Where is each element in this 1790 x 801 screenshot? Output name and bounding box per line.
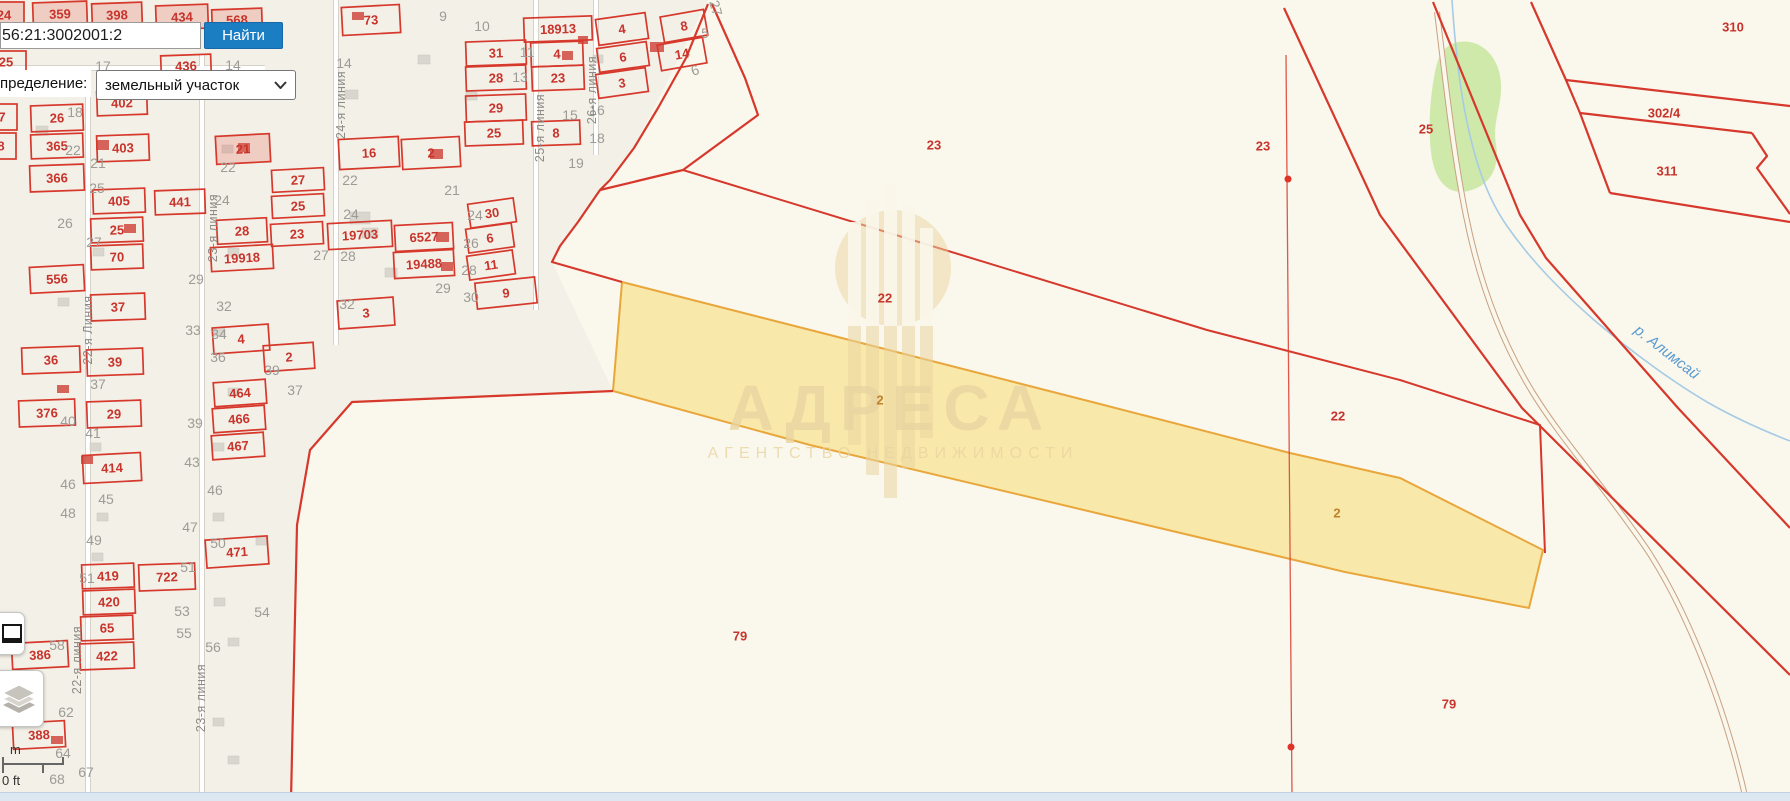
- address-number: 39: [187, 415, 203, 431]
- address-number: 45: [98, 491, 114, 507]
- address-number: 22: [220, 159, 236, 175]
- address-number: 13: [512, 69, 528, 85]
- address-number: 37: [90, 376, 106, 392]
- address-number: 56: [205, 639, 221, 655]
- address-number: 32: [339, 296, 355, 312]
- parcel-number: 23: [551, 70, 566, 85]
- address-number: 24: [343, 206, 359, 222]
- rural-parcel-number: 79: [733, 629, 747, 644]
- address-number: 15: [562, 107, 578, 123]
- address-number: 27: [86, 234, 102, 250]
- rural-parcel-number: 79: [1442, 697, 1456, 712]
- parcel-number: 6527: [409, 229, 439, 245]
- scale-control: m 0 ft: [2, 742, 64, 788]
- capital-structure: [352, 12, 364, 20]
- parcel-number: 28: [234, 223, 249, 239]
- rural-parcel-number: 310: [1722, 20, 1744, 35]
- address-number: 28: [340, 248, 356, 264]
- parcel-number: 24: [0, 8, 12, 23]
- capital-structure: [96, 140, 109, 150]
- parcel-number: 73: [363, 12, 378, 28]
- block-310-west: [1531, 2, 1610, 193]
- address-number: 18: [67, 104, 83, 120]
- rural-parcel-number: 302/4: [1648, 106, 1681, 121]
- parcel-number: 31: [489, 45, 504, 60]
- capital-structure: [124, 224, 136, 233]
- parcel-number: 414: [101, 460, 124, 476]
- address-number: 58: [49, 637, 65, 653]
- parcel-number: 26: [50, 110, 65, 125]
- address-number: 22: [65, 142, 81, 158]
- building-footprint: [228, 638, 239, 646]
- address-number: 39: [264, 362, 280, 378]
- street-label: 23-я линия: [206, 194, 220, 262]
- survey-point: [1285, 176, 1292, 183]
- parcel-number: 419: [97, 568, 119, 584]
- selected-parcel-number: 2: [1333, 506, 1340, 521]
- river-line: [1452, 0, 1790, 441]
- building-footprint: [214, 598, 225, 606]
- address-number: 27: [706, 0, 726, 18]
- street-label: 25-я линия: [533, 94, 547, 162]
- layers-icon: [2, 683, 36, 715]
- parcel-number: 28: [489, 70, 504, 85]
- building-footprint: [90, 443, 101, 451]
- rural-parcel-number: 23: [927, 138, 941, 153]
- address-number: 55: [176, 625, 192, 641]
- parcel-number: 70: [110, 249, 125, 264]
- parcel-number: 7: [0, 110, 6, 125]
- parcel-number: 422: [96, 648, 118, 664]
- address-number: 37: [287, 382, 303, 398]
- address-number: 50: [210, 535, 226, 551]
- parcel-number: 403: [112, 140, 134, 156]
- parcel-number: 388: [28, 727, 50, 743]
- address-number: 19: [568, 155, 584, 171]
- layers-button[interactable]: [0, 670, 44, 727]
- parcel-number: 420: [98, 594, 120, 610]
- scale-bar-m: [2, 757, 64, 765]
- address-number: 34: [211, 326, 227, 342]
- address-number: 29: [188, 271, 204, 287]
- address-number: 49: [86, 532, 102, 548]
- parcel-number: 2: [427, 145, 435, 160]
- parcel-number: 464: [229, 385, 252, 402]
- building-footprint: [58, 298, 69, 306]
- west-rural-boundary: [291, 391, 613, 800]
- survey-point: [1288, 744, 1295, 751]
- search-button[interactable]: Найти: [204, 22, 283, 49]
- parcel-number: 467: [227, 438, 250, 454]
- parcel-number: 25: [110, 222, 125, 237]
- selected-parcel-number: 2: [876, 393, 883, 408]
- building-footprint: [418, 55, 430, 64]
- parcel-number: 359: [49, 6, 71, 22]
- address-number: 33: [185, 322, 201, 338]
- object-type-value: земельный участок: [105, 77, 239, 94]
- parcel-number: 471: [226, 544, 249, 560]
- address-number: 9: [439, 8, 447, 24]
- parcel-number: 8: [552, 125, 560, 140]
- object-type-label: пределение:: [0, 70, 91, 97]
- parcel-number: 16: [361, 145, 376, 161]
- address-number: 14: [336, 55, 352, 71]
- parcel-number: 722: [156, 569, 178, 585]
- parcel-number: 19918: [224, 250, 261, 267]
- watermark-subtitle: АГЕНТСТВО НЕДВИЖИМОСТИ: [708, 445, 1079, 462]
- address-number: 53: [174, 603, 190, 619]
- address-number: 10: [474, 18, 490, 34]
- parcel-number: 8: [0, 139, 5, 154]
- address-number: 5: [701, 25, 709, 41]
- street-label: 24-я линия: [334, 71, 348, 139]
- address-number: 32: [216, 298, 232, 314]
- river-label: р. Алимсай: [1630, 321, 1703, 383]
- parcel-number: 21: [235, 141, 250, 157]
- extent-icon: [2, 624, 22, 643]
- address-number: 47: [182, 519, 198, 535]
- rural-parcel-number: 22: [878, 291, 892, 306]
- quarter-divider: [1286, 55, 1292, 795]
- address-number: 48: [60, 505, 76, 521]
- map-canvas[interactable]: АДРЕСА АГЕНТСТВО НЕДВИЖИМОСТИ р. Алимсай…: [0, 0, 1790, 800]
- cadastral-map-app: АДРЕСА АГЕНТСТВО НЕДВИЖИМОСТИ р. Алимсай…: [0, 0, 1790, 800]
- parcel-number: 556: [46, 271, 68, 287]
- urban-area-bg: [0, 0, 708, 800]
- parcel-number: 11: [483, 257, 499, 274]
- capital-structure: [57, 385, 69, 393]
- address-number: 43: [184, 454, 200, 470]
- parcel-number: 14: [674, 45, 692, 62]
- address-number: 54: [254, 604, 270, 620]
- rural-parcel-number: 23: [1256, 139, 1270, 154]
- address-number: 29: [435, 280, 451, 296]
- parcel-number: 39: [108, 354, 123, 369]
- street-label: 26-я линия: [585, 56, 599, 124]
- chevron-down-icon: [274, 81, 287, 89]
- building-footprint: [228, 756, 239, 764]
- building-footprint: [92, 553, 103, 561]
- parcel-number: 366: [46, 170, 68, 186]
- scale-m-label: m: [2, 742, 64, 757]
- parcel-number: 4: [553, 46, 562, 61]
- address-number: 46: [60, 476, 76, 492]
- parcel-302-upper: [1566, 80, 1790, 106]
- address-number: 26: [57, 215, 73, 231]
- building-footprint: [213, 443, 224, 451]
- parcel-number: 18913: [540, 21, 577, 37]
- address-number: 27: [313, 247, 329, 263]
- parcel-number: 27: [290, 172, 305, 188]
- parcel-number: 25: [487, 125, 502, 140]
- rural-parcel-number: 22: [1331, 409, 1345, 424]
- object-type-select[interactable]: земельный участок: [96, 70, 296, 100]
- address-number: 21: [90, 155, 106, 171]
- address-number: 51: [79, 570, 95, 586]
- parcel-number: 65: [100, 620, 115, 635]
- parcel-number: 25: [0, 55, 13, 70]
- scale-bar-ft: [2, 765, 44, 773]
- building-footprint: [213, 718, 224, 726]
- search-bar: [0, 22, 201, 49]
- street-label: 22-я линия: [70, 626, 84, 694]
- address-number: 24: [467, 207, 483, 223]
- scale-ft-label: 0 ft: [2, 773, 64, 788]
- parcel-number: 23: [289, 226, 304, 242]
- address-number: 18: [589, 130, 605, 146]
- address-number: 36: [210, 349, 226, 365]
- parcel-number: 376: [36, 405, 58, 421]
- parcel-number: 19488: [406, 256, 443, 273]
- parcel-number: 405: [108, 193, 130, 209]
- parcel-number: 36: [44, 352, 59, 367]
- address-number: 62: [58, 704, 74, 720]
- address-number: 22: [342, 172, 358, 188]
- address-number: 67: [78, 764, 94, 780]
- capital-structure: [562, 51, 573, 60]
- address-number: 41: [85, 425, 101, 441]
- parcel-number: 29: [489, 100, 504, 115]
- parcel-number: 29: [107, 406, 122, 421]
- parcel-number: 386: [29, 647, 51, 663]
- extent-button[interactable]: [0, 612, 25, 655]
- parcel-number: 2: [285, 349, 293, 364]
- address-number: 21: [444, 182, 460, 198]
- building-footprint: [97, 513, 108, 521]
- parcel-number: 30: [484, 205, 500, 222]
- capital-structure: [441, 262, 453, 271]
- parcel-number: 19703: [342, 227, 379, 244]
- street-label: 23-я линия: [194, 664, 208, 732]
- address-number: 46: [207, 482, 223, 498]
- parcel-number: 9: [502, 285, 511, 301]
- street-label: 22-я Линия: [81, 295, 95, 364]
- rural-parcel-number: 25: [1419, 122, 1433, 137]
- parcel-number: 466: [228, 411, 251, 427]
- parcel-number: 3: [362, 305, 370, 320]
- address-number: 11: [520, 44, 535, 60]
- address-number: 28: [461, 262, 477, 278]
- address-number: 25: [89, 180, 105, 196]
- address-number: 51: [180, 559, 196, 575]
- address-number: 40: [60, 413, 76, 429]
- watermark-title: АДРЕСА: [728, 372, 1052, 444]
- address-number: 26: [463, 235, 479, 251]
- parcel-number: 398: [106, 7, 128, 23]
- address-number: 30: [463, 289, 479, 305]
- parcel-number: 441: [169, 194, 191, 210]
- search-input[interactable]: [0, 22, 201, 49]
- rural-parcel-number: 311: [1657, 164, 1678, 179]
- parcel-number: 25: [290, 198, 305, 214]
- parcel-number: 37: [111, 299, 126, 314]
- parcel-311-south: [1610, 193, 1790, 222]
- parcel-302-notch: [1752, 133, 1790, 214]
- building-footprint: [213, 513, 224, 521]
